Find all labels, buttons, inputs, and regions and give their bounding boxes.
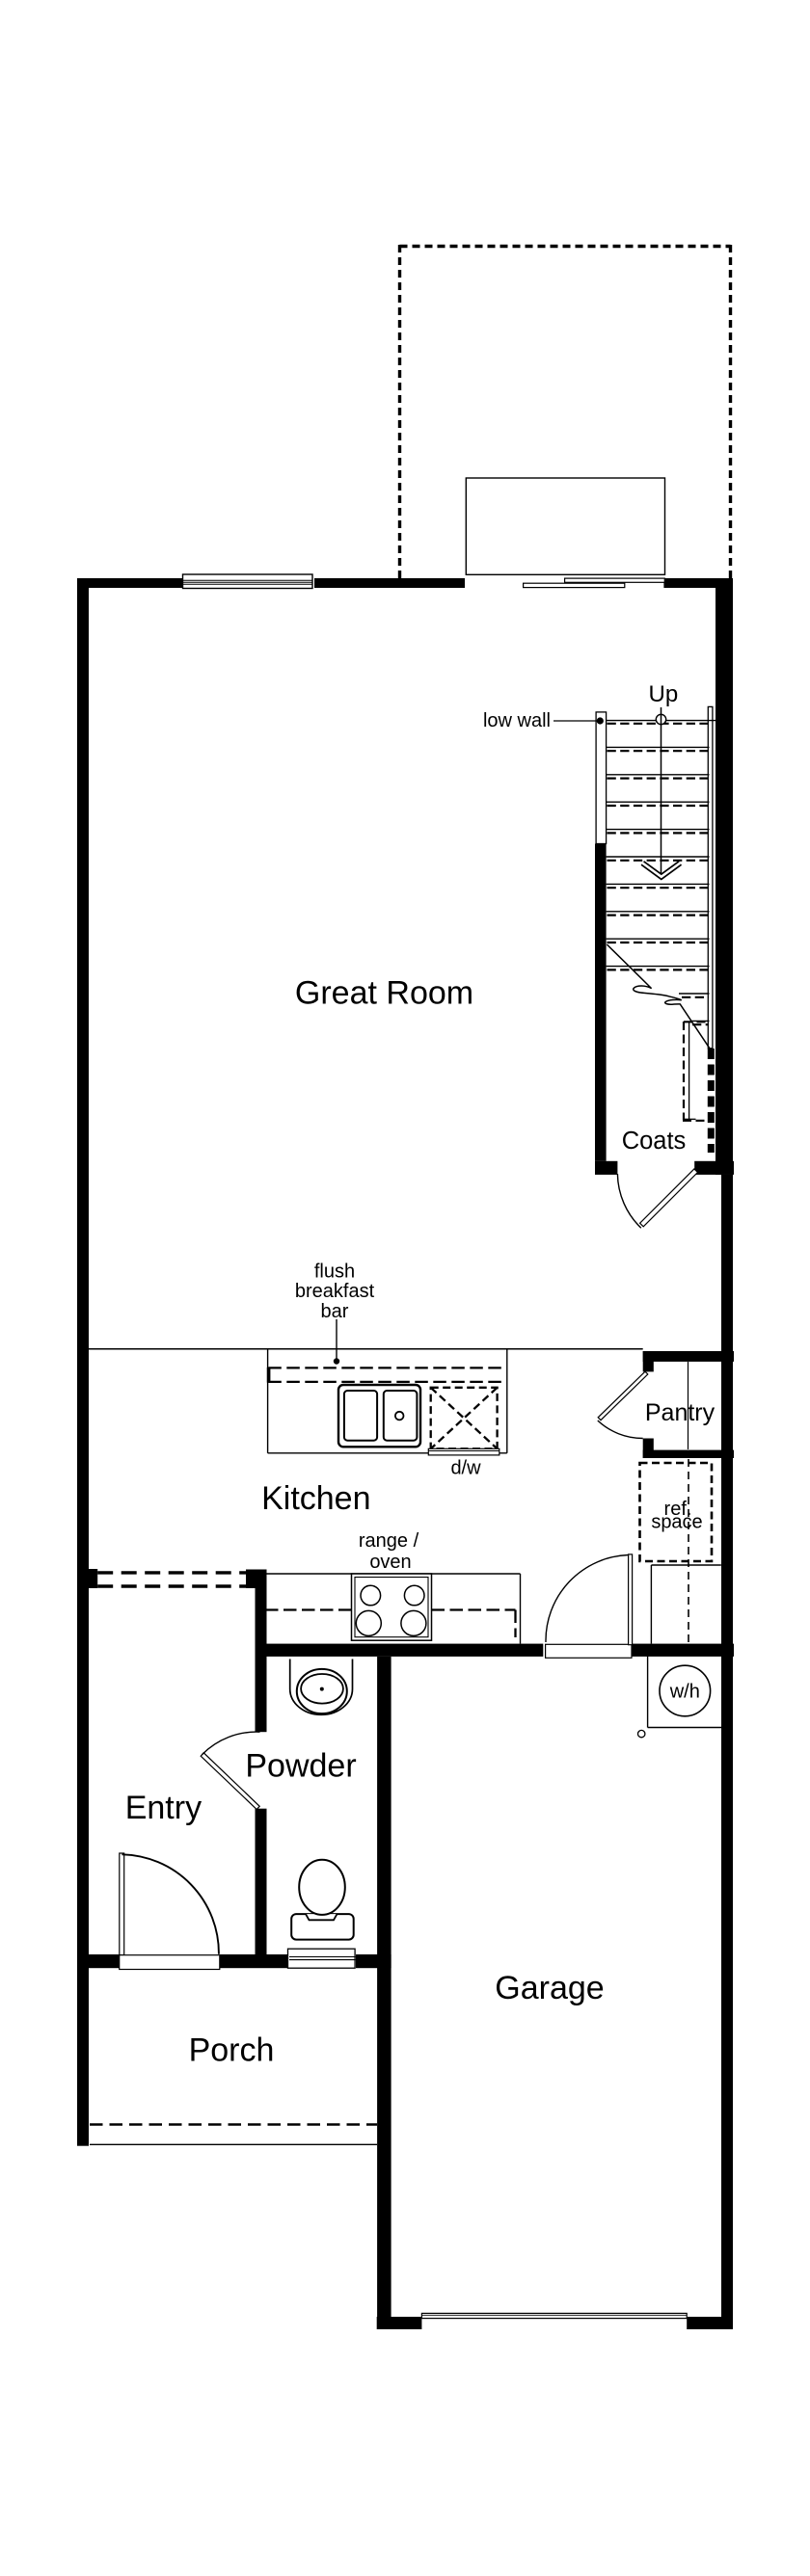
svg-text:breakfast: breakfast: [295, 1281, 375, 1302]
svg-text:Great Room: Great Room: [295, 975, 473, 1012]
svg-text:Up: Up: [649, 681, 679, 707]
svg-text:range /: range /: [359, 1530, 419, 1552]
svg-text:Entry: Entry: [125, 1790, 202, 1826]
svg-text:Garage: Garage: [495, 1970, 604, 2006]
svg-text:Kitchen: Kitchen: [261, 1480, 370, 1517]
svg-text:bar: bar: [321, 1301, 349, 1322]
svg-text:low wall: low wall: [483, 710, 551, 731]
svg-text:flush: flush: [314, 1261, 355, 1282]
svg-text:space: space: [651, 1512, 702, 1533]
svg-text:Porch: Porch: [189, 2032, 275, 2069]
svg-text:Powder: Powder: [245, 1748, 356, 1785]
svg-text:d/w: d/w: [450, 1458, 481, 1479]
svg-text:Pantry: Pantry: [645, 1399, 715, 1426]
svg-text:oven: oven: [369, 1552, 411, 1573]
svg-text:w/h: w/h: [669, 1682, 700, 1703]
svg-text:Coats: Coats: [622, 1128, 687, 1155]
